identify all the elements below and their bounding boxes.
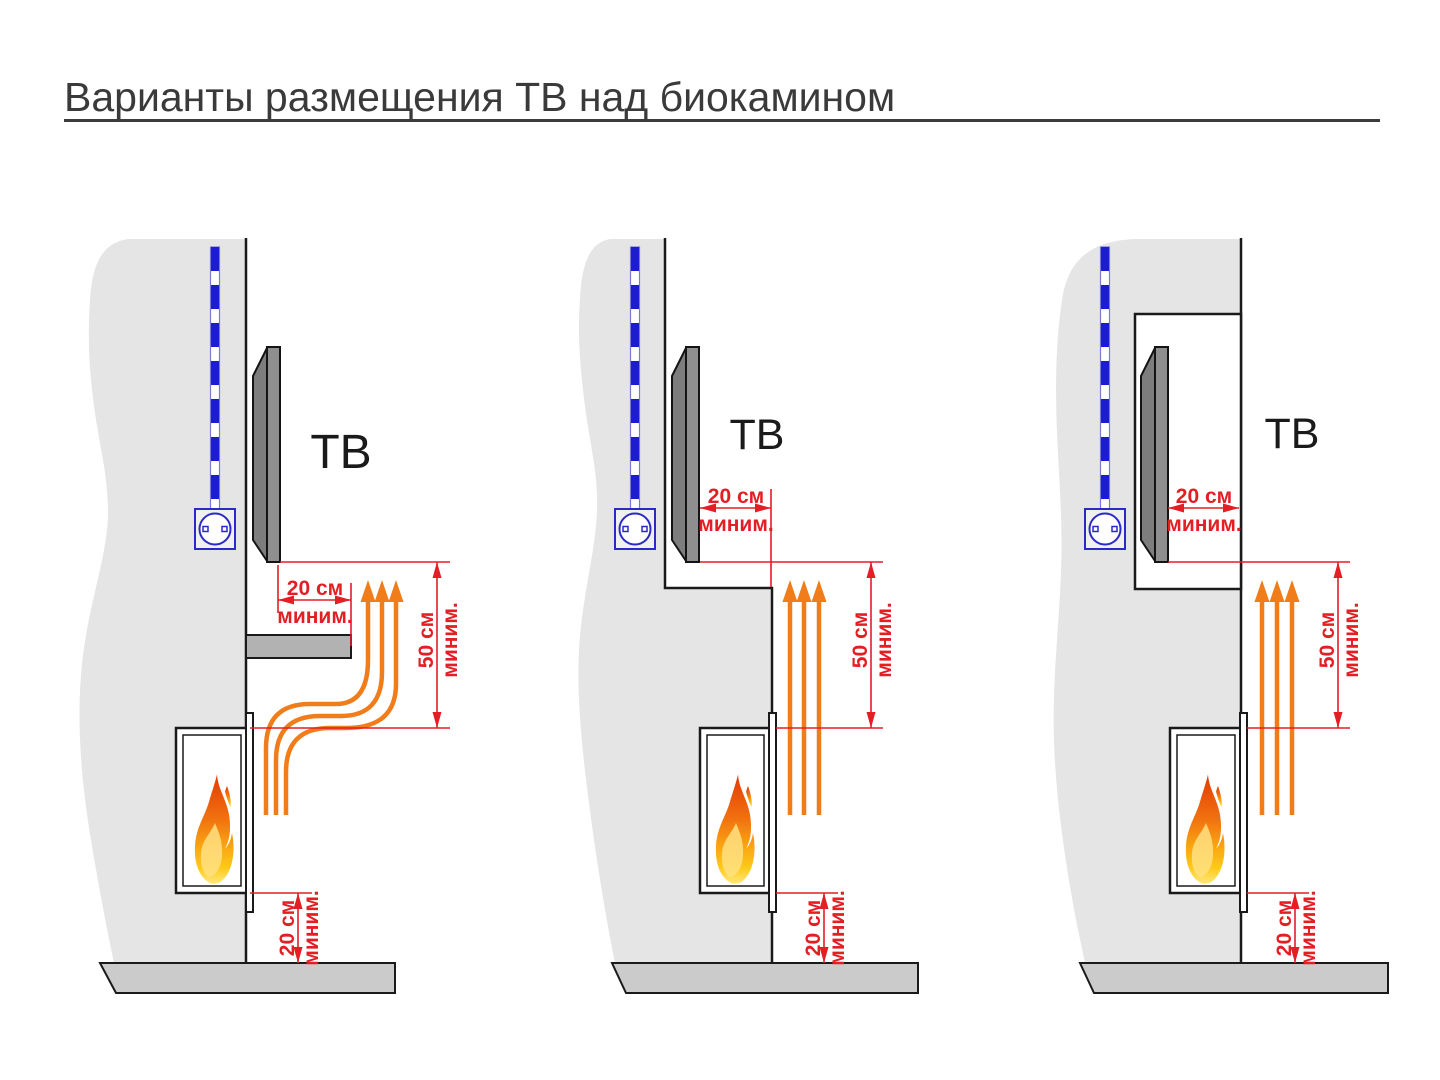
power-cable bbox=[1101, 247, 1110, 509]
svg-text:20 см: 20 см bbox=[287, 577, 343, 600]
svg-text:20 см: 20 см bbox=[708, 485, 764, 508]
power-outlet-icon bbox=[195, 509, 235, 549]
power-cable bbox=[631, 247, 640, 509]
svg-text:миним.: миним. bbox=[439, 602, 462, 677]
svg-text:20 см: 20 см bbox=[802, 900, 825, 956]
tv-panel bbox=[267, 347, 280, 562]
heat-arrowhead bbox=[1255, 580, 1270, 602]
svg-text:миним.: миним. bbox=[826, 890, 849, 965]
floor-clearance-dimension: 20 см миним. bbox=[1247, 890, 1320, 965]
heat-arrow bbox=[266, 602, 368, 815]
power-outlet-icon bbox=[1085, 509, 1125, 549]
svg-text:50 см: 50 см bbox=[1316, 612, 1339, 668]
floor-slab bbox=[1080, 963, 1388, 993]
outlet-pin bbox=[203, 527, 208, 532]
tv-side-view bbox=[253, 347, 280, 562]
svg-text:20 см: 20 см bbox=[276, 900, 299, 956]
floor-slab bbox=[612, 963, 918, 993]
svg-text:миним.: миним. bbox=[300, 890, 323, 965]
svg-text:миним.: миним. bbox=[1166, 513, 1241, 536]
svg-text:миним.: миним. bbox=[277, 605, 352, 628]
svg-text:миним.: миним. bbox=[873, 602, 896, 677]
fireplace-front-frame bbox=[1240, 713, 1247, 912]
svg-text:50 см: 50 см bbox=[415, 612, 438, 668]
power-outlet-icon bbox=[615, 509, 655, 549]
outlet-pin bbox=[1093, 527, 1098, 532]
front-clearance-dimension: 20 см миним. bbox=[277, 565, 352, 646]
tv-back bbox=[1141, 348, 1155, 561]
protective-shelf bbox=[246, 635, 351, 658]
variant-2-diagram: ТВ 20 bbox=[578, 238, 918, 993]
heat-arrowhead bbox=[1270, 580, 1285, 602]
outlet-pin bbox=[222, 527, 227, 532]
tv-back bbox=[672, 348, 686, 561]
svg-text:20 см: 20 см bbox=[1273, 900, 1296, 956]
heat-arrowhead bbox=[375, 580, 390, 602]
tv-panel bbox=[686, 347, 699, 562]
heat-arrowhead bbox=[1285, 580, 1300, 602]
fireplace-front-frame bbox=[246, 713, 253, 912]
svg-text:миним.: миним. bbox=[698, 513, 773, 536]
tv-side-view bbox=[1141, 347, 1168, 562]
heat-arrow bbox=[286, 602, 396, 815]
heat-flow-arrows bbox=[1255, 580, 1300, 815]
front-clearance-dimension: 20 см миним. bbox=[698, 485, 773, 587]
outlet-pin bbox=[642, 527, 647, 532]
outlet-pin bbox=[1112, 527, 1117, 532]
svg-text:миним.: миним. bbox=[1340, 602, 1363, 677]
svg-text:миним.: миним. bbox=[1297, 890, 1320, 965]
floor-clearance-dimension: 20 см миним. bbox=[776, 890, 849, 965]
heat-arrowhead bbox=[797, 580, 812, 602]
heat-arrowhead bbox=[361, 580, 376, 602]
outlet-pin bbox=[623, 527, 628, 532]
tv-label: ТВ bbox=[1265, 410, 1320, 458]
svg-text:20 см: 20 см bbox=[1176, 485, 1232, 508]
svg-text:50 см: 50 см bbox=[849, 612, 872, 668]
heat-arrowhead bbox=[389, 580, 404, 602]
heat-arrowhead bbox=[783, 580, 798, 602]
floor-clearance-dimension: 20 см миним. bbox=[250, 890, 323, 965]
tv-side-view bbox=[672, 347, 699, 562]
tv-label: ТВ bbox=[730, 411, 785, 459]
heat-flow-arrows bbox=[783, 580, 827, 815]
variant-3-diagram: ТВ 20 bbox=[1054, 238, 1388, 993]
placement-diagram: ТВ 20 bbox=[0, 0, 1440, 1080]
fireplace-front-frame bbox=[769, 713, 776, 912]
heat-arrowhead bbox=[812, 580, 827, 602]
tv-back bbox=[253, 348, 267, 561]
floor-slab bbox=[100, 963, 395, 993]
power-cable bbox=[211, 247, 220, 509]
variant-1-diagram: ТВ 20 bbox=[80, 238, 462, 993]
page: Варианты размещения ТВ над биокамином bbox=[0, 0, 1440, 1080]
tv-label: ТВ bbox=[310, 426, 371, 479]
